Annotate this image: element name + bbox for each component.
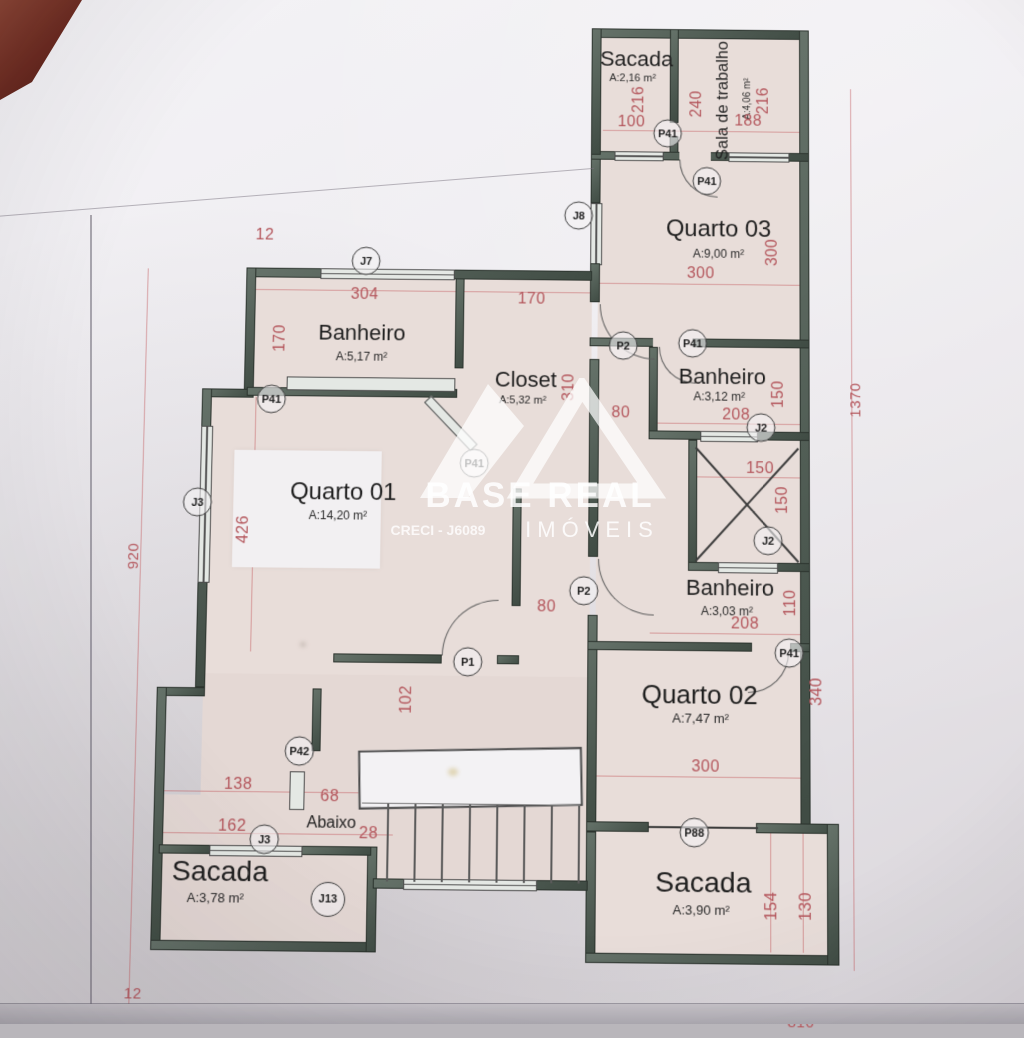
dim-label: 300 [687, 265, 715, 283]
room-label: Banheiro [318, 320, 406, 346]
room-label: Sala de trabalho [713, 41, 733, 160]
room-label: Sacada [171, 855, 268, 889]
wall-segment [591, 159, 601, 204]
tag-door: P1 [453, 647, 482, 677]
tag-door: P41 [678, 329, 707, 358]
dim-label: 150 [770, 380, 788, 408]
dim-label: 216 [630, 86, 648, 113]
dim-label: 28 [359, 825, 378, 844]
small-door-symbol [289, 771, 305, 810]
wall-segment [159, 844, 212, 854]
dim-label: 208 [731, 615, 759, 633]
room-area: A:14,20 m² [308, 508, 367, 523]
tag-door: P41 [460, 449, 489, 478]
room-area: A:5,17 m² [336, 349, 388, 363]
surface-below-paper [0, 1004, 1024, 1024]
dim-label: 100 [618, 114, 646, 132]
paper-stain [448, 768, 458, 776]
dim-label: 300 [691, 758, 719, 777]
tag-door: P41 [653, 119, 682, 147]
room-label: Closet [495, 367, 557, 393]
room-area: A:5,32 m² [499, 394, 546, 406]
dim-label: 216 [755, 87, 773, 114]
window-symbol [718, 562, 778, 574]
stair-treads [361, 803, 581, 884]
tag-door: P41 [693, 167, 722, 195]
dim-label: 240 [688, 90, 706, 117]
room-area: A:3,12 m² [693, 389, 745, 403]
dim-label: 304 [350, 286, 378, 304]
window-symbol [320, 268, 454, 280]
wall-segment [585, 831, 596, 963]
dim-label: 1370 [847, 383, 864, 418]
dim-label: 80 [537, 598, 556, 616]
dim-label: 102 [398, 685, 417, 714]
wall-segment [590, 263, 600, 302]
sliding-door-symbol [287, 376, 456, 392]
room-label: Quarto 02 [641, 678, 757, 711]
dim-label: 150 [746, 460, 774, 478]
dim-label: 138 [224, 776, 253, 795]
dim-label: 188 [734, 113, 762, 131]
paper-edge [90, 215, 92, 1007]
tag-window: J2 [747, 413, 776, 442]
paper-stain [300, 642, 306, 647]
room-area: A:3,90 m² [673, 902, 730, 918]
wall-segment [497, 655, 519, 664]
dimension-line [128, 268, 149, 1005]
dim-label: 310 [560, 373, 578, 401]
wall-segment [585, 953, 839, 966]
wall-segment [586, 821, 649, 832]
tag-door: P2 [569, 576, 598, 605]
wall-segment [512, 488, 522, 606]
dim-label: 170 [518, 291, 546, 309]
tag-door: P2 [609, 331, 638, 360]
wall-segment [333, 653, 442, 663]
dim-label: 162 [218, 817, 247, 836]
wall-segment [688, 440, 697, 571]
wall-segment [799, 30, 811, 829]
room-label: Banheiro [679, 364, 766, 390]
dim-label: 340 [808, 677, 826, 706]
dim-label: 208 [722, 407, 750, 425]
wall-segment [311, 688, 321, 751]
floorplan-drawing: Sacada A:2,16 m² Sala de trabalho A:4,06… [0, 9, 1024, 1038]
wall-segment [587, 641, 752, 652]
wall-segment [670, 29, 679, 123]
room-label: Sacada [655, 866, 751, 900]
dim-label: 12 [123, 984, 141, 1002]
dim-label: 68 [320, 788, 339, 807]
dim-label: 80 [611, 404, 630, 422]
window-symbol [728, 152, 789, 162]
stairs-label: Abaixo [306, 814, 356, 833]
dim-label: 170 [271, 324, 289, 352]
room-area: A:9,00 m² [693, 247, 744, 261]
dim-label: 130 [798, 892, 816, 921]
tag-door: P41 [775, 638, 804, 667]
stair-landing [358, 747, 583, 810]
dim-label: 12 [256, 227, 275, 245]
dim-label: 150 [774, 486, 792, 514]
paper-edge [0, 1003, 1024, 1004]
tag-window: J8 [564, 201, 593, 229]
dim-label: 426 [234, 515, 253, 543]
dimension-line [850, 89, 855, 971]
room-label: Sacada [600, 46, 673, 72]
room-area: A:7,47 m² [672, 710, 729, 726]
wall-segment [649, 347, 658, 440]
dim-label: 920 [124, 543, 142, 570]
tag-window: J2 [754, 526, 783, 555]
dim-label: 154 [763, 892, 781, 921]
window-symbol [614, 151, 663, 161]
dim-label: 300 [764, 239, 782, 267]
room-label: Banheiro [686, 575, 774, 602]
room-area: A:3,78 m² [187, 889, 245, 905]
tag-door: P88 [680, 818, 709, 848]
wall-segment [827, 824, 840, 966]
wall-segment [588, 359, 599, 557]
room-label: Quarto 03 [666, 215, 771, 243]
wall-segment [150, 940, 376, 953]
room-label: Quarto 01 [290, 478, 397, 507]
floorplan-photo: Sacada A:2,16 m² Sala de trabalho A:4,06… [0, 0, 1024, 1024]
dim-label: 110 [782, 589, 800, 616]
room-area: A:2,16 m² [609, 72, 656, 84]
wall-segment [455, 278, 465, 368]
